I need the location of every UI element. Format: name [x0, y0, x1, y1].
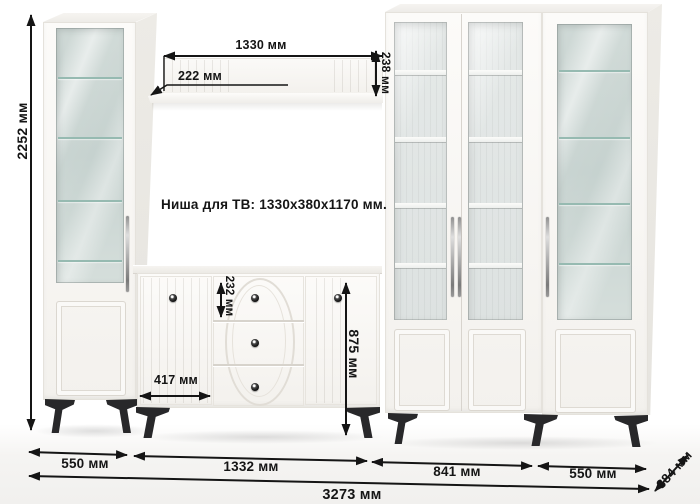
- shelf-shadow: [152, 103, 382, 111]
- dim-sideboard-door-width: 417 мм: [141, 373, 211, 387]
- dim-sideboard-height: 875 мм: [346, 326, 362, 382]
- dim-shelf-length: 1330 мм: [221, 38, 301, 52]
- unit-top: [385, 4, 662, 12]
- bookcase-shelf: [469, 70, 522, 75]
- glass-door: [56, 28, 124, 283]
- lower-panel: [56, 301, 126, 396]
- drawer-knob: [251, 383, 259, 391]
- bookcase-shelf: [395, 137, 446, 142]
- shelf-grooves: [334, 60, 380, 92]
- glass-shelf: [559, 263, 630, 265]
- bookcase-door-divider: [461, 14, 462, 411]
- drawer-knob: [251, 339, 259, 347]
- floor-shadow: [138, 430, 386, 444]
- bookcase-shelf: [469, 263, 522, 268]
- bookcase-shelf: [395, 70, 446, 75]
- lower-panel: [555, 329, 636, 413]
- sideboard-top: [133, 265, 382, 273]
- bookcase-shelf: [395, 203, 446, 208]
- door-handle: [451, 217, 454, 297]
- glass-shelf: [58, 200, 122, 202]
- drawer-knob: [251, 294, 259, 302]
- glass-shelf: [58, 77, 122, 79]
- tv-niche-note: Ниша для ТВ: 1330x380x1170 мм.: [148, 197, 400, 212]
- glass-shelf: [559, 203, 630, 205]
- dim-left-cabinet-width: 550 мм: [50, 456, 120, 471]
- bookcase-shelf: [469, 137, 522, 142]
- lower-panel: [468, 329, 526, 411]
- furniture-dimension-diagram: 2252 мм 1330 мм 222 мм 238 мм Ниша для Т…: [0, 0, 700, 504]
- oval-decor-inner: [232, 285, 286, 397]
- dim-sideboard-width: 1332 мм: [211, 459, 291, 474]
- lower-panel: [394, 329, 450, 411]
- shelf-board: [148, 93, 383, 103]
- dim-total-height: 2252 мм: [14, 96, 30, 166]
- door-handle: [126, 216, 129, 292]
- floor-shadow: [384, 436, 660, 450]
- bookcase-glass-right: [468, 22, 523, 320]
- bookcase-shelf: [469, 203, 522, 208]
- dim-shelf-end-height: 238 мм: [379, 47, 393, 99]
- door-knob: [334, 294, 342, 302]
- drawer-separator: [213, 364, 304, 366]
- dim-shelf-offset: 222 мм: [165, 69, 235, 83]
- glass-shelf: [58, 260, 122, 262]
- dim-right-cabinet-width: 550 мм: [558, 466, 628, 481]
- dim-drawer-height: 232 мм: [223, 271, 235, 321]
- door-knob: [169, 294, 177, 302]
- door-handle: [458, 217, 461, 297]
- glass-shelf: [58, 137, 122, 139]
- unit-side: [648, 4, 662, 415]
- dim-total-width: 3273 мм: [307, 487, 397, 503]
- bookcase-glass-left: [394, 22, 447, 320]
- glass-shelf: [559, 137, 630, 139]
- glass-shelf: [559, 70, 630, 72]
- door-handle: [546, 217, 549, 297]
- bookcase-shelf: [395, 263, 446, 268]
- dim-bookcase-width: 841 мм: [422, 464, 492, 479]
- glass-door: [557, 24, 632, 320]
